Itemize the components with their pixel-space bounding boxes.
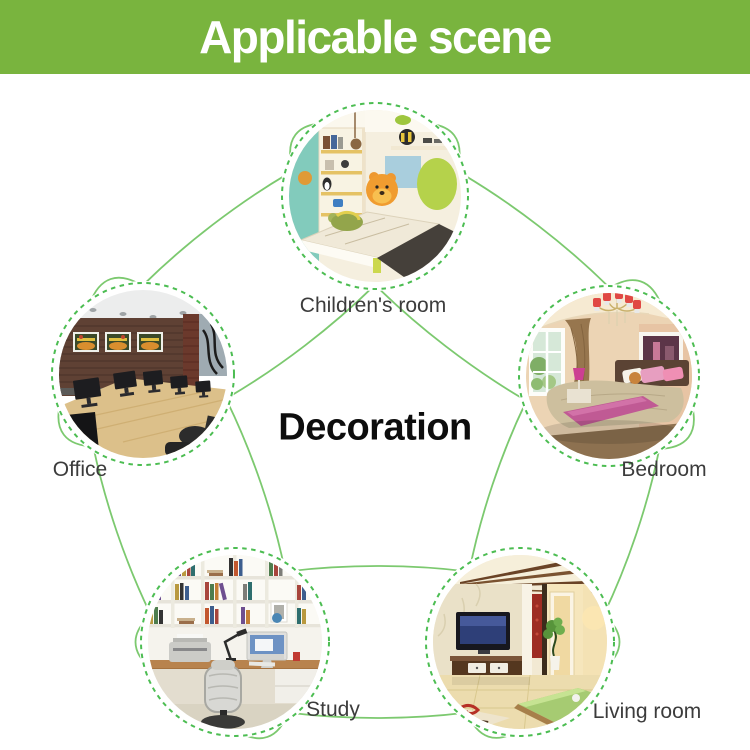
living-room-label: Living room — [593, 700, 702, 724]
bedroom-label: Bedroom — [621, 458, 706, 482]
applicable-scene-infographic: Applicable scene — [0, 0, 750, 750]
center-title: Decoration — [278, 407, 471, 450]
wall-paintings — [73, 332, 163, 352]
tv — [456, 612, 510, 654]
study-label: Study — [306, 698, 360, 722]
node-office — [50, 281, 236, 467]
office-label: Office — [53, 458, 107, 482]
children-room-label: Children's room — [300, 294, 446, 318]
pooh-bear-plush — [366, 172, 398, 206]
office-chair — [201, 660, 245, 729]
node-living-room — [424, 546, 616, 738]
node-study — [139, 546, 331, 738]
printer — [169, 634, 211, 662]
node-children-room — [280, 101, 470, 291]
decoration-diagram — [0, 0, 750, 750]
tv-bench — [450, 656, 532, 675]
node-bedroom — [517, 284, 701, 468]
